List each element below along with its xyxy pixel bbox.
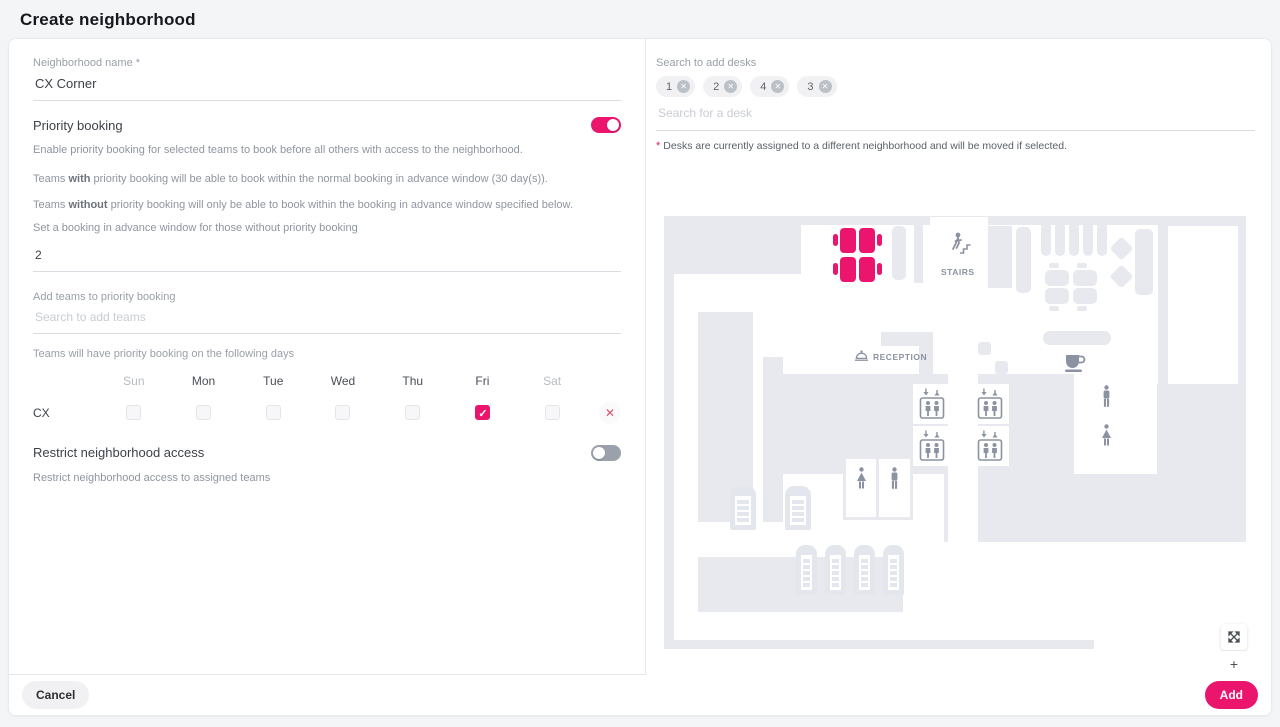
- selected-desk-chips: 1✕ 2✕ 4✕ 3✕: [656, 76, 1255, 97]
- neighborhood-name-label: Neighborhood name *: [33, 57, 621, 69]
- team-priority-row: CX ✕: [33, 402, 621, 424]
- elevator-icon: [971, 426, 1009, 466]
- restrict-access-title: Restrict neighborhood access: [33, 445, 204, 460]
- close-icon: ✕: [680, 83, 687, 91]
- add-teams-search-input[interactable]: [33, 307, 621, 334]
- day-checkbox-thu[interactable]: [405, 405, 420, 420]
- remove-desk-chip-button[interactable]: ✕: [724, 80, 737, 93]
- stairs-room: STAIRS: [930, 217, 988, 297]
- map-table: [1109, 264, 1133, 288]
- desk-selection-panel: Search to add desks 1✕ 2✕ 4✕ 3✕ *Desks a…: [646, 39, 1271, 715]
- map-wall: [674, 640, 1094, 649]
- create-neighborhood-panel: Neighborhood name * Priority booking Ena…: [8, 38, 1272, 716]
- map-desk[interactable]: [892, 226, 906, 280]
- restroom-room: [843, 456, 913, 520]
- days-header-row: Sun Mon Tue Wed Thu Fri Sat: [33, 374, 621, 388]
- map-sofa: [1135, 229, 1153, 295]
- close-icon: ✕: [605, 406, 615, 420]
- close-icon: ✕: [727, 83, 734, 91]
- close-icon: ✕: [822, 83, 829, 91]
- map-couch: [1045, 270, 1069, 286]
- phone-booth: [854, 545, 875, 595]
- stairs-icon: [946, 231, 972, 257]
- plus-icon: +: [1230, 656, 1238, 672]
- selected-desk-chair: [833, 263, 838, 275]
- toggle-knob: [607, 119, 619, 131]
- map-wall: [914, 218, 923, 283]
- phone-booth: [883, 545, 904, 595]
- map-couch: [1073, 270, 1097, 286]
- map-room-block: [988, 226, 1012, 288]
- with-priority-text: Teams with priority booking will be able…: [33, 172, 621, 187]
- desk-chip: 1✕: [656, 76, 695, 97]
- remove-team-button[interactable]: ✕: [599, 402, 621, 424]
- add-button[interactable]: Add: [1205, 681, 1258, 709]
- footer-bar: Cancel Add: [9, 674, 1271, 715]
- map-desk[interactable]: [1016, 227, 1031, 293]
- day-checkbox-mon[interactable]: [196, 405, 211, 420]
- remove-desk-chip-button[interactable]: ✕: [677, 80, 690, 93]
- selected-desk-chair: [877, 263, 882, 275]
- desk-chip: 4✕: [750, 76, 789, 97]
- expand-icon: [1228, 631, 1240, 643]
- add-teams-label: Add teams to priority booking: [33, 291, 621, 303]
- mens-restroom-icon: [889, 467, 900, 491]
- map-desk[interactable]: [1097, 222, 1107, 256]
- remove-desk-chip-button[interactable]: ✕: [771, 80, 784, 93]
- selected-desk[interactable]: [859, 228, 875, 253]
- selected-desk[interactable]: [840, 257, 856, 282]
- day-header-thu: Thu: [378, 374, 448, 388]
- advance-window-input[interactable]: [33, 245, 621, 272]
- priority-booking-toggle[interactable]: [591, 117, 621, 133]
- advance-window-label: Set a booking in advance window for thos…: [33, 221, 621, 236]
- map-desk[interactable]: [1041, 222, 1051, 256]
- map-core-block: [944, 474, 1246, 542]
- coffee-icon: [1062, 352, 1088, 374]
- cancel-button[interactable]: Cancel: [22, 681, 89, 709]
- map-desk[interactable]: [1069, 222, 1079, 256]
- phone-booth: [785, 486, 811, 530]
- selected-desk[interactable]: [840, 228, 856, 253]
- team-name: CX: [33, 406, 99, 420]
- map-wall: [1238, 216, 1246, 394]
- elevator-icon: [913, 426, 951, 466]
- map-stool: [995, 361, 1008, 374]
- map-desk[interactable]: [1083, 222, 1093, 256]
- neighborhood-name-input[interactable]: [33, 73, 621, 101]
- phone-booth: [796, 545, 817, 595]
- desk-search-input[interactable]: [656, 103, 1255, 131]
- restrict-access-description: Restrict neighborhood access to assigned…: [33, 471, 621, 486]
- desk-reassignment-note: *Desks are currently assigned to a diffe…: [656, 140, 1255, 152]
- elevator-icon: [913, 384, 951, 424]
- day-header-tue: Tue: [238, 374, 308, 388]
- selected-desk-chair: [877, 234, 882, 246]
- close-icon: ✕: [775, 83, 782, 91]
- day-checkbox-tue[interactable]: [266, 405, 281, 420]
- selected-desk[interactable]: [859, 257, 875, 282]
- map-table: [1043, 331, 1111, 345]
- search-desks-label: Search to add desks: [656, 57, 1255, 69]
- day-header-sun: Sun: [99, 374, 169, 388]
- map-desk[interactable]: [1055, 222, 1065, 256]
- desk-chip: 3✕: [797, 76, 836, 97]
- map-table: [1109, 236, 1133, 260]
- without-priority-text: Teams without priority booking will only…: [33, 198, 621, 213]
- map-couch: [1077, 263, 1087, 268]
- priority-booking-description: Enable priority booking for selected tea…: [33, 143, 621, 158]
- map-wall: [1158, 216, 1246, 226]
- map-couch: [1049, 263, 1059, 268]
- day-header-mon: Mon: [169, 374, 239, 388]
- day-checkbox-sun[interactable]: [126, 405, 141, 420]
- day-checkbox-fri[interactable]: [475, 405, 490, 420]
- womens-restroom-icon: [855, 467, 868, 491]
- floor-map[interactable]: STAIRS: [664, 212, 1246, 649]
- map-fit-button[interactable]: [1221, 624, 1247, 650]
- map-stool: [978, 342, 991, 355]
- day-header-fri: Fri: [448, 374, 518, 388]
- day-checkbox-sat[interactable]: [545, 405, 560, 420]
- map-couch: [1077, 306, 1087, 311]
- mens-restroom-icon: [1088, 379, 1124, 415]
- womens-restroom-icon: [1088, 418, 1124, 454]
- reception-label: RECEPTION: [873, 352, 927, 362]
- desk-chip: 2✕: [703, 76, 742, 97]
- elevator-icon: [971, 384, 1009, 424]
- map-couch: [1073, 288, 1097, 304]
- map-wall: [1158, 216, 1168, 394]
- map-room-block: [664, 216, 801, 274]
- day-checkbox-wed[interactable]: [335, 405, 350, 420]
- priority-booking-title: Priority booking: [33, 118, 123, 133]
- restrict-access-toggle[interactable]: [591, 445, 621, 461]
- day-header-sat: Sat: [517, 374, 587, 388]
- phone-booth: [825, 545, 846, 595]
- map-couch: [1045, 288, 1069, 304]
- page-title: Create neighborhood: [0, 0, 1280, 38]
- remove-desk-chip-button[interactable]: ✕: [819, 80, 832, 93]
- map-couch: [1049, 306, 1059, 311]
- toggle-knob: [593, 447, 605, 459]
- priority-days-label: Teams will have priority booking on the …: [33, 348, 621, 360]
- selected-desk-chair: [833, 234, 838, 246]
- phone-booth: [730, 486, 756, 530]
- stairs-label: STAIRS: [941, 267, 975, 277]
- map-wall: [664, 216, 674, 649]
- neighborhood-settings-panel: Neighborhood name * Priority booking Ena…: [9, 39, 646, 676]
- reception-bell-icon: [854, 349, 869, 363]
- day-header-wed: Wed: [308, 374, 378, 388]
